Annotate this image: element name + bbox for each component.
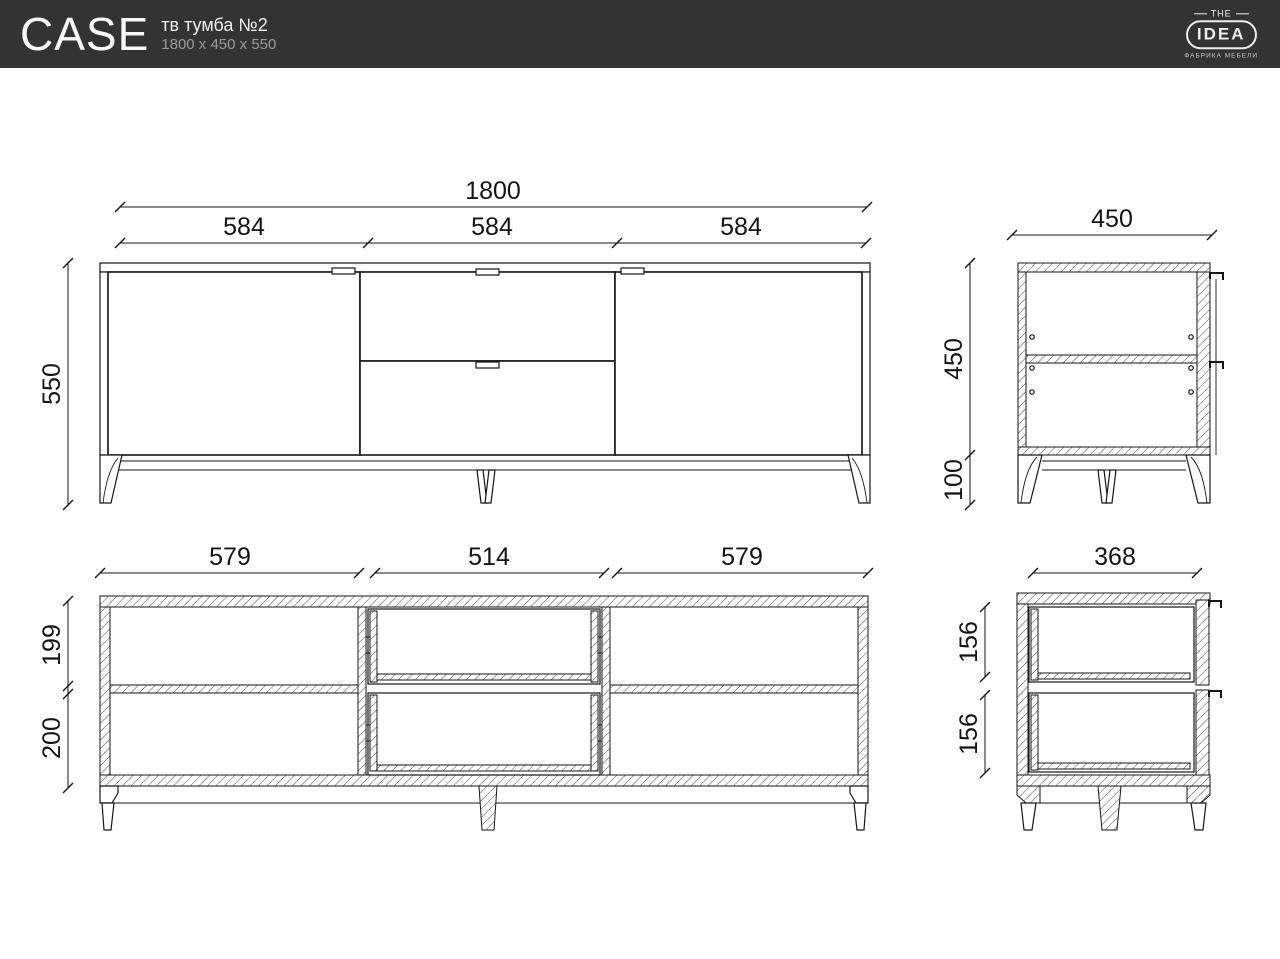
dim-section-lower-height: 200 <box>38 717 66 759</box>
ss-bottom-panel <box>1017 775 1210 786</box>
dim-section-compartment-1: 579 <box>209 543 251 571</box>
dim-bottom-drawer-height: 156 <box>955 713 983 755</box>
side-middle-hook-handle <box>1210 362 1223 369</box>
side-back-panel <box>1018 272 1026 447</box>
front-left-edge <box>100 272 108 455</box>
front-left-leg <box>100 455 122 503</box>
ss-top-hook-handle <box>1209 601 1221 608</box>
fs-center-leg <box>479 786 497 830</box>
logo-the-text: THE <box>1211 8 1232 18</box>
side-base-legs <box>1018 455 1210 503</box>
ss-top-drawer-bottom <box>1038 673 1190 679</box>
front-left-door <box>108 272 360 455</box>
dim-side-leg-height: 100 <box>940 459 968 501</box>
front-section-view: 579 514 579 199 200 <box>38 543 873 830</box>
bottom-drawer-handle <box>476 362 499 368</box>
side-door-section <box>1197 272 1210 447</box>
dim-front-overall-width: 1800 <box>465 177 521 205</box>
side-section-legs <box>1017 786 1210 830</box>
fs-left-shelf <box>110 685 358 693</box>
dim-section-upper-height: 199 <box>38 624 66 666</box>
company-logo: THE IDEA ФАБРИКА МЕБЕЛИ <box>1184 8 1258 59</box>
side-section-view: 368 156 156 <box>955 543 1221 830</box>
front-section-drawers <box>366 609 602 775</box>
dim-side-section-depth: 368 <box>1094 543 1136 571</box>
ss-top-drawer-box <box>1029 607 1194 682</box>
ss-left-leg-block <box>1017 786 1040 803</box>
dim-section-compartment-3: 579 <box>721 543 763 571</box>
front-section-legs <box>100 786 868 830</box>
product-subtitle-block: тв тумба №2 1800 x 450 x 550 <box>161 14 276 55</box>
front-right-door <box>615 272 862 455</box>
logo-subtitle: ФАБРИКА МЕБЕЛИ <box>1184 53 1258 60</box>
fs-top-drawer-bottom <box>377 674 591 680</box>
logo-dash-left <box>1194 13 1207 14</box>
ss-bottom-drawer-bottom <box>1038 763 1190 769</box>
product-size: 1800 x 450 x 550 <box>161 36 276 54</box>
dim-front-section-2: 584 <box>471 213 513 241</box>
fs-left-leg-block <box>100 786 118 803</box>
front-center-leg-right <box>485 470 495 503</box>
side-center-leg-right <box>1106 470 1116 503</box>
fs-left-leg <box>102 803 114 830</box>
front-base-legs <box>100 455 870 503</box>
dim-side-body-height: 450 <box>940 338 968 380</box>
dim-top-drawer-height: 156 <box>955 621 983 663</box>
header: CASE тв тумба №2 1800 x 450 x 550 THE ID… <box>0 0 1280 68</box>
dim-section-compartment-2: 514 <box>468 543 510 571</box>
side-top-hook-handle <box>1210 273 1223 280</box>
front-right-leg <box>848 455 870 503</box>
fs-bottom-panel <box>100 775 868 786</box>
fs-left-wall <box>100 596 110 786</box>
left-door-handle <box>332 268 355 274</box>
ss-top-drawer-front <box>1196 600 1209 685</box>
fs-top-panel <box>100 596 868 607</box>
brand-block: CASE тв тумба №2 1800 x 450 x 550 <box>20 11 276 57</box>
side-top-panel <box>1018 263 1210 272</box>
ss-center-leg <box>1098 786 1121 830</box>
side-section-drawers <box>1029 607 1194 772</box>
dim-side-width: 450 <box>1091 205 1133 233</box>
side-cabinet <box>1018 263 1223 455</box>
logo-top-row: THE <box>1194 8 1249 18</box>
fs-right-leg <box>854 803 866 830</box>
ss-top-panel <box>1017 593 1210 604</box>
logo-dash-right <box>1236 13 1249 14</box>
right-door-handle <box>621 268 644 274</box>
fs-right-divider <box>602 607 610 775</box>
side-bottom-panel <box>1018 447 1210 455</box>
dim-front-section-1: 584 <box>223 213 265 241</box>
dim-front-overall-height: 550 <box>38 363 66 405</box>
side-screws <box>1030 335 1193 394</box>
front-view: 1800 584 584 584 550 <box>38 177 872 510</box>
fs-top-drawer-box <box>368 609 600 684</box>
side-view: 450 450 100 <box>940 205 1223 510</box>
fs-bottom-drawer-bottom <box>377 765 591 771</box>
ss-right-leg <box>1191 803 1206 830</box>
dim-front-section-3: 584 <box>720 213 762 241</box>
logo-idea-text: IDEA <box>1186 20 1257 49</box>
ss-right-leg-block <box>1187 786 1210 803</box>
product-type: тв тумба №2 <box>161 14 276 37</box>
ss-back-wall <box>1017 593 1028 786</box>
front-top-drawer <box>360 272 615 361</box>
ss-bottom-drawer-box <box>1029 693 1194 772</box>
technical-drawing: 1800 584 584 584 550 <box>0 68 1280 959</box>
front-bottom-drawer <box>360 361 615 455</box>
fs-right-leg-block <box>850 786 868 803</box>
front-right-edge <box>862 272 870 455</box>
side-shelf <box>1026 355 1197 363</box>
ss-bottom-drawer-front <box>1196 690 1209 775</box>
ss-left-leg <box>1021 803 1036 830</box>
fs-bottom-drawer-box <box>368 693 600 775</box>
fs-right-wall <box>858 596 868 786</box>
ss-bottom-hook-handle <box>1209 691 1221 698</box>
top-drawer-handle <box>476 269 499 275</box>
product-name: CASE <box>20 11 149 57</box>
front-cabinet <box>100 263 870 455</box>
fs-left-divider <box>358 607 366 775</box>
fs-right-shelf <box>610 685 858 693</box>
